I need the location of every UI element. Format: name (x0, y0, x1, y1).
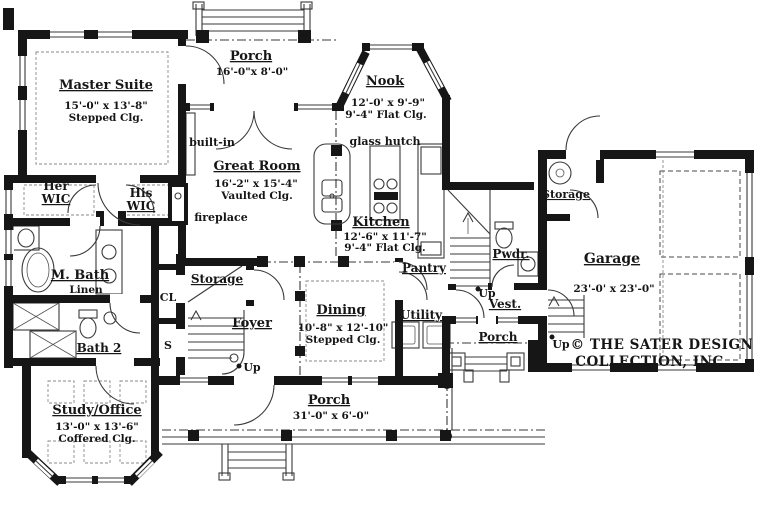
room-ceiling-study-office: Coffered Clg. (58, 433, 135, 445)
room-label-study-office: Study/Office (52, 403, 141, 418)
room-label-storage-foyer: Storage (191, 272, 244, 286)
label-fireplace: fireplace (194, 211, 248, 224)
room-label-foyer: Foyer (232, 316, 272, 331)
room-label-porch-rear: Porch (478, 330, 517, 344)
copyright-line-2: COLLECTION, INC. (575, 354, 728, 370)
room-label-pantry: Pantry (402, 261, 447, 275)
door-swing-arcs (68, 46, 600, 425)
room-label-nook: Nook (366, 74, 405, 89)
label-up-garage-stairs: Up (552, 338, 570, 351)
room-dims-study-office: 13'-0" x 13'-6" (55, 421, 139, 433)
label-up-foyer: Up (243, 361, 261, 374)
floor-plan-drawing: Master Suite 15'-0" x 13'-8" Stepped Clg… (0, 0, 760, 513)
room-dims-dining: 10'-8" x 12'-10" (298, 322, 389, 334)
room-label-pwdr: Pwdr. (492, 247, 529, 261)
room-ceiling-kitchen: 9'-4" Flat Clg. (344, 242, 425, 254)
floor-plan-canvas: Master Suite 15'-0" x 13'-8" Stepped Clg… (0, 0, 760, 513)
room-label-garage: Garage (584, 251, 640, 267)
room-ceiling-great-room: Vaulted Clg. (220, 190, 292, 202)
room-label-his-wic-line1: His (130, 186, 153, 200)
room-label-porch-front: Porch (308, 393, 351, 408)
label-linen: Linen (69, 284, 103, 296)
room-dims-nook: 12'-0' x 9'-9" (351, 97, 425, 109)
copyright-line-1: © THE SATER DESIGN (571, 337, 754, 353)
room-label-storage-garage: Storage (542, 188, 590, 201)
label-cl-closet: CL (160, 291, 177, 304)
room-label-her-wic-line2: WIC (41, 192, 71, 206)
label-glass-hutch: glass hutch (350, 135, 421, 148)
room-dims-great-room: 16'-2" x 15'-4" (214, 178, 298, 190)
room-label-her-wic-line1: Her (43, 179, 69, 193)
room-label-porch-top: Porch (230, 49, 273, 64)
room-label-master-suite: Master Suite (59, 78, 153, 93)
room-label-bath-2: Bath 2 (77, 341, 122, 355)
room-ceiling-dining: Stepped Clg. (306, 334, 381, 346)
room-label-utility: Utility (400, 308, 443, 322)
label-s-closet: S (164, 339, 172, 352)
room-ceiling-nook: 9'-4" Flat Clg. (345, 109, 426, 121)
room-label-m-bath: M. Bath (51, 268, 110, 283)
room-label-dining: Dining (316, 303, 365, 318)
room-dims-master-suite: 15'-0" x 13'-8" (64, 100, 148, 112)
room-dims-porch-top: 16'-0"x 8'-0" (216, 66, 289, 78)
room-labels: Master Suite 15'-0" x 13'-8" Stepped Clg… (41, 49, 754, 445)
room-label-great-room: Great Room (213, 159, 300, 174)
label-built-in: built-in (189, 136, 235, 149)
room-label-vest: Vest. (488, 297, 521, 311)
room-label-kitchen: Kitchen (352, 215, 410, 230)
room-dims-garage: 23'-0' x 23'-0" (573, 283, 654, 295)
room-label-his-wic-line2: WIC (126, 199, 156, 213)
room-ceiling-master-suite: Stepped Clg. (69, 112, 144, 124)
room-dims-porch-front: 31'-0" x 6'-0" (293, 410, 369, 422)
